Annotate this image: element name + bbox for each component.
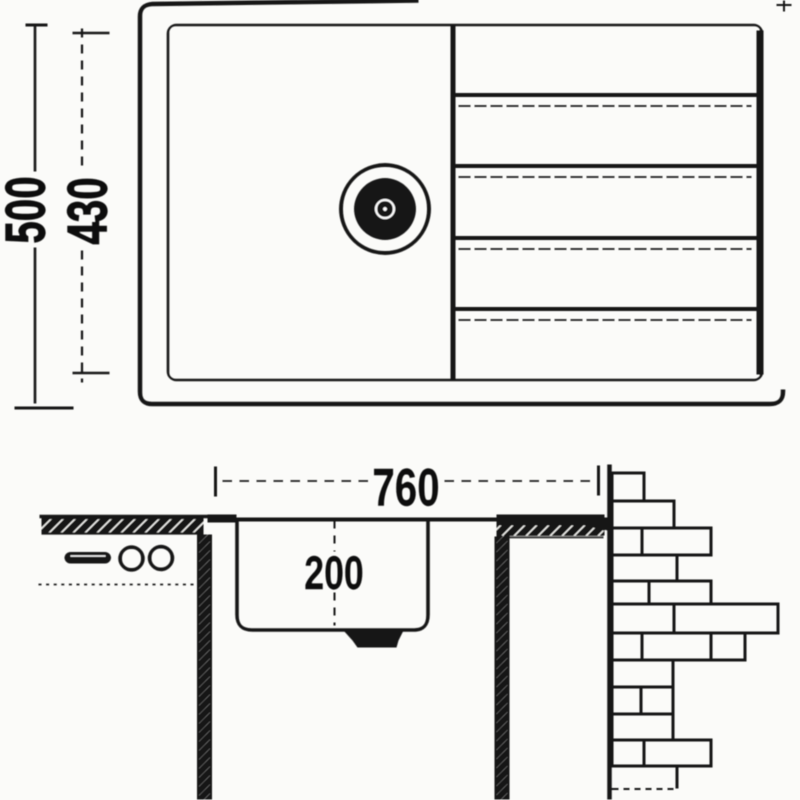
svg-text:430: 430 xyxy=(57,177,119,244)
svg-text:200: 200 xyxy=(304,546,364,599)
svg-text:500: 500 xyxy=(0,176,57,243)
svg-text:760: 760 xyxy=(372,457,439,517)
